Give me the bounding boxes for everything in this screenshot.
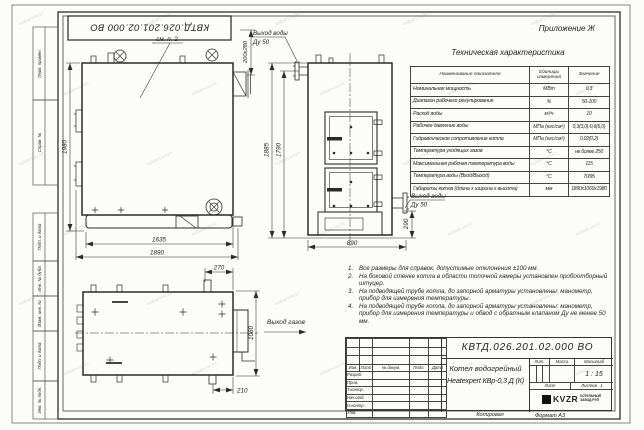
format-label: Формат А3 [520,413,580,420]
spec-col-value: Значение [569,67,610,84]
document-designation: КВТД.026.201.02.000 ВО [441,338,613,359]
logo-mark-icon [542,395,551,404]
doc-number-box: КВТД.026.201.02.000 ВО [68,16,231,40]
upper-door [325,112,382,164]
doc-number-rotated: КВТД.026.201.02.000 ВО [90,22,210,33]
spec-row: Диапазон рабочего регулирования%50-100 [411,96,610,109]
stamp-vzam-inv: Взам. инв. № [37,300,42,327]
role-row: Т.контр. [347,387,447,395]
note-item: 2.На боковой стенке котла в области топо… [346,273,608,288]
title-block: Изм. Лист № докум. Подп. Дата Разраб. Пр… [345,337,612,411]
view-side-dims: 1980 1635 1890 200х280 см. п. 2 [62,30,256,260]
spec-row: Рабочее давление водыМПа (кгс/см²)0,3(3,… [411,121,610,134]
scale-label: Масштаб [575,359,613,366]
stamp-sprav-no: Справ. № [37,132,42,152]
top-bottom-offset-dim: 210 [236,388,248,395]
spec-table: Наименование показателя Единицы измерени… [410,66,610,197]
product-name: Котел водогрейный Heatexpert КВр-0,3 Д (… [441,359,529,412]
role-row: Пров. [347,379,447,387]
front-height-dim: 1885 [264,143,271,158]
side-inner-dim: 1635 [152,237,167,244]
note-item: 4.На подводящей трубе котла, до запорной… [346,303,608,326]
spec-col-name: Наименование показателя [411,67,530,84]
front-outlet-height-dim: 1790 [276,143,283,158]
frame-stamp-column: Перв. примен. Справ. № Подп. и дата Инв.… [33,27,58,419]
lit-label: Лит. [530,359,550,366]
side-height-dim: 1980 [62,140,69,155]
note-item: 3.На подводящей трубе котла, до запорной… [346,288,608,303]
stamp-podp-data-2: Подп. и дата [37,342,42,370]
manufacturer-logo: KVZR КОТЕЛЬНЫЙ ЗАВОД РЭП [530,390,613,408]
scale-value: 1 : 15 [575,366,613,383]
logo-subtext: КОТЕЛЬНЫЙ ЗАВОД РЭП [580,395,601,402]
sheets-cell: Листов 1 [571,383,613,390]
spec-row: Габариты котла (длина х ширина х высота)… [411,184,610,197]
spec-row: Температура воды (Вход/Выход)°С70/95 [411,171,610,184]
drawing-sheet: kotlam-kv.kzkotlam-kv.kzkotlam-kv.kzkotl… [0,0,644,430]
spec-header-row: Наименование показателя Единицы измерени… [411,67,610,84]
spec-row: Максимальная рабочая температура воды°С1… [411,159,610,172]
note-item: 1.Все размеры для справок, допустимые от… [346,265,608,273]
notes-list: 1.Все размеры для справок, допустимые от… [346,265,608,326]
spec-row: Номинальная мощностьМВт0,3 [411,84,610,97]
front-width-dim: 890 [347,240,358,247]
sheets-label: Листов [581,383,597,388]
top-flue-offset-dim: 270 [213,265,225,272]
water-outlet-flange-right [392,193,409,213]
role-row: Н.контр. [347,402,447,410]
stamp-inv-dubl: Инв. № дубл. [37,265,42,291]
sheet-label: Лист [530,383,571,390]
water-outlet-top-du: Ду 50 [252,39,270,46]
sheets-value: 1 [600,383,602,388]
appendix-label: Приложение Ж [475,24,595,33]
title-block-right: Лит. Масса Масштаб 1 : 15 Лист Листов 1 [529,359,613,412]
top-depth-dim: 1060 [248,326,255,341]
revision-table: Изм. Лист № докум. Подп. Дата Разраб. Пр… [346,338,447,418]
role-row: Утв. [347,409,447,417]
spec-row: Гидравлическое сопротивление котлаМПа (к… [411,134,610,147]
spec-table-title: Техническая характеристика [410,48,606,57]
stamp-podp-data-1: Подп. и дата [37,223,42,251]
flue-stub-side [233,70,251,98]
logo-text: KVZR [553,394,578,404]
flue-section-dim: 200х280 [243,40,249,64]
lit-cell [543,366,550,383]
spec-row: Температура уходящих газов°Сне более 250 [411,146,610,159]
water-outlet-right-du: Ду 50 [410,202,428,209]
spec-col-units: Единицы измерения [530,67,569,84]
mass-cell [550,366,575,383]
callout-see-note-2: см. п. 2 [156,36,178,43]
lower-door [325,168,382,212]
front-offset-dim: 290 [403,218,410,230]
stamp-inv-podl: Инв. № подл. [37,387,42,414]
gas-outlet-label: Выход газов [267,318,305,326]
role-row: Нач.отд. [347,394,447,402]
top-flange-circles [114,49,218,62]
mass-label: Масса [550,359,575,366]
side-length-dim: 1890 [150,250,165,257]
view-top [75,280,258,384]
stamp-perv-primen: Перв. примен. [37,49,42,78]
revision-header-row: Изм. Лист № докум. Подп. Дата [347,364,447,372]
water-outlet-top-label: Выход воды [253,30,288,37]
view-side [74,49,251,228]
spec-row: Расход водым³/ч10 [411,109,610,122]
view-front [293,53,409,246]
lit-cell [530,366,537,383]
role-row: Разраб. [347,372,447,380]
